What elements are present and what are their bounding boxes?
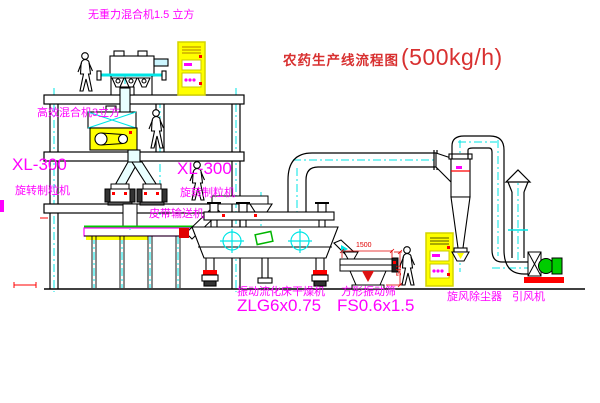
stack-rain-cap bbox=[506, 170, 530, 182]
fluid-bed-dryer bbox=[192, 203, 354, 286]
granulator-discharge-chute bbox=[123, 204, 137, 227]
cyclone-tag bbox=[456, 166, 462, 169]
granulator-left bbox=[105, 184, 135, 205]
dryer-exhaust-duct bbox=[288, 150, 437, 212]
indicator-icon bbox=[184, 63, 192, 66]
label-granulator-left-model: XL-300 bbox=[12, 156, 67, 174]
label-fan: 引风机 bbox=[512, 292, 545, 304]
granulator-right bbox=[137, 184, 167, 205]
fan-housing bbox=[539, 259, 554, 274]
mixer-discharge-pipe bbox=[120, 88, 130, 114]
edge-marks bbox=[0, 200, 48, 288]
cyclone-cylinder bbox=[451, 159, 470, 197]
conveyor-legs bbox=[92, 236, 180, 288]
dim-sieve-length: 1500 bbox=[356, 242, 372, 249]
control-cabinet-bottom bbox=[426, 233, 453, 286]
title-text: 农药生产线流程图 bbox=[283, 49, 399, 69]
dryer-legs bbox=[202, 258, 328, 286]
induced-draft-fan bbox=[524, 252, 564, 283]
fan-motor bbox=[552, 258, 562, 274]
label-granulator-left-name: 旋转制粒机 bbox=[15, 186, 70, 198]
label-high-efficiency-mixer: 高效混合机3立方 bbox=[37, 108, 120, 120]
label-belt-conveyor: 皮带输送机 bbox=[149, 209, 204, 221]
title-capacity: (500kg/h) bbox=[401, 44, 503, 71]
label-sieve-model: FS0.6x1.5 bbox=[337, 297, 415, 315]
dim-sieve-height: 541 bbox=[396, 264, 403, 276]
indicator-icon bbox=[432, 254, 440, 257]
floor-slab-top bbox=[44, 95, 244, 104]
label-gravity-free-mixer: 无重力混合机1.5 立方 bbox=[88, 10, 194, 22]
label-granulator-right-model: XL-300 bbox=[177, 160, 232, 178]
label-granulator-right-name: 旋转制粒机 bbox=[180, 188, 235, 200]
fan-base bbox=[524, 277, 564, 283]
person-figure bbox=[78, 53, 93, 91]
label-dryer-model: ZLG6x0.75 bbox=[237, 297, 321, 315]
vibrating-sieve bbox=[340, 249, 402, 289]
feeder-drive bbox=[179, 228, 189, 238]
control-cabinet-top bbox=[178, 42, 205, 95]
y-chute-right bbox=[132, 162, 158, 187]
label-cyclone: 旋风除尘器 bbox=[447, 292, 502, 304]
granulators bbox=[105, 184, 167, 227]
cyclone-cone bbox=[451, 197, 470, 248]
drawing-title: 农药生产线流程图 (500kg/h) bbox=[283, 44, 503, 71]
cad-flow-diagram: 农药生产线流程图 (500kg/h) 无重力混合机1.5 立方 高效混合机3立方… bbox=[0, 0, 600, 403]
